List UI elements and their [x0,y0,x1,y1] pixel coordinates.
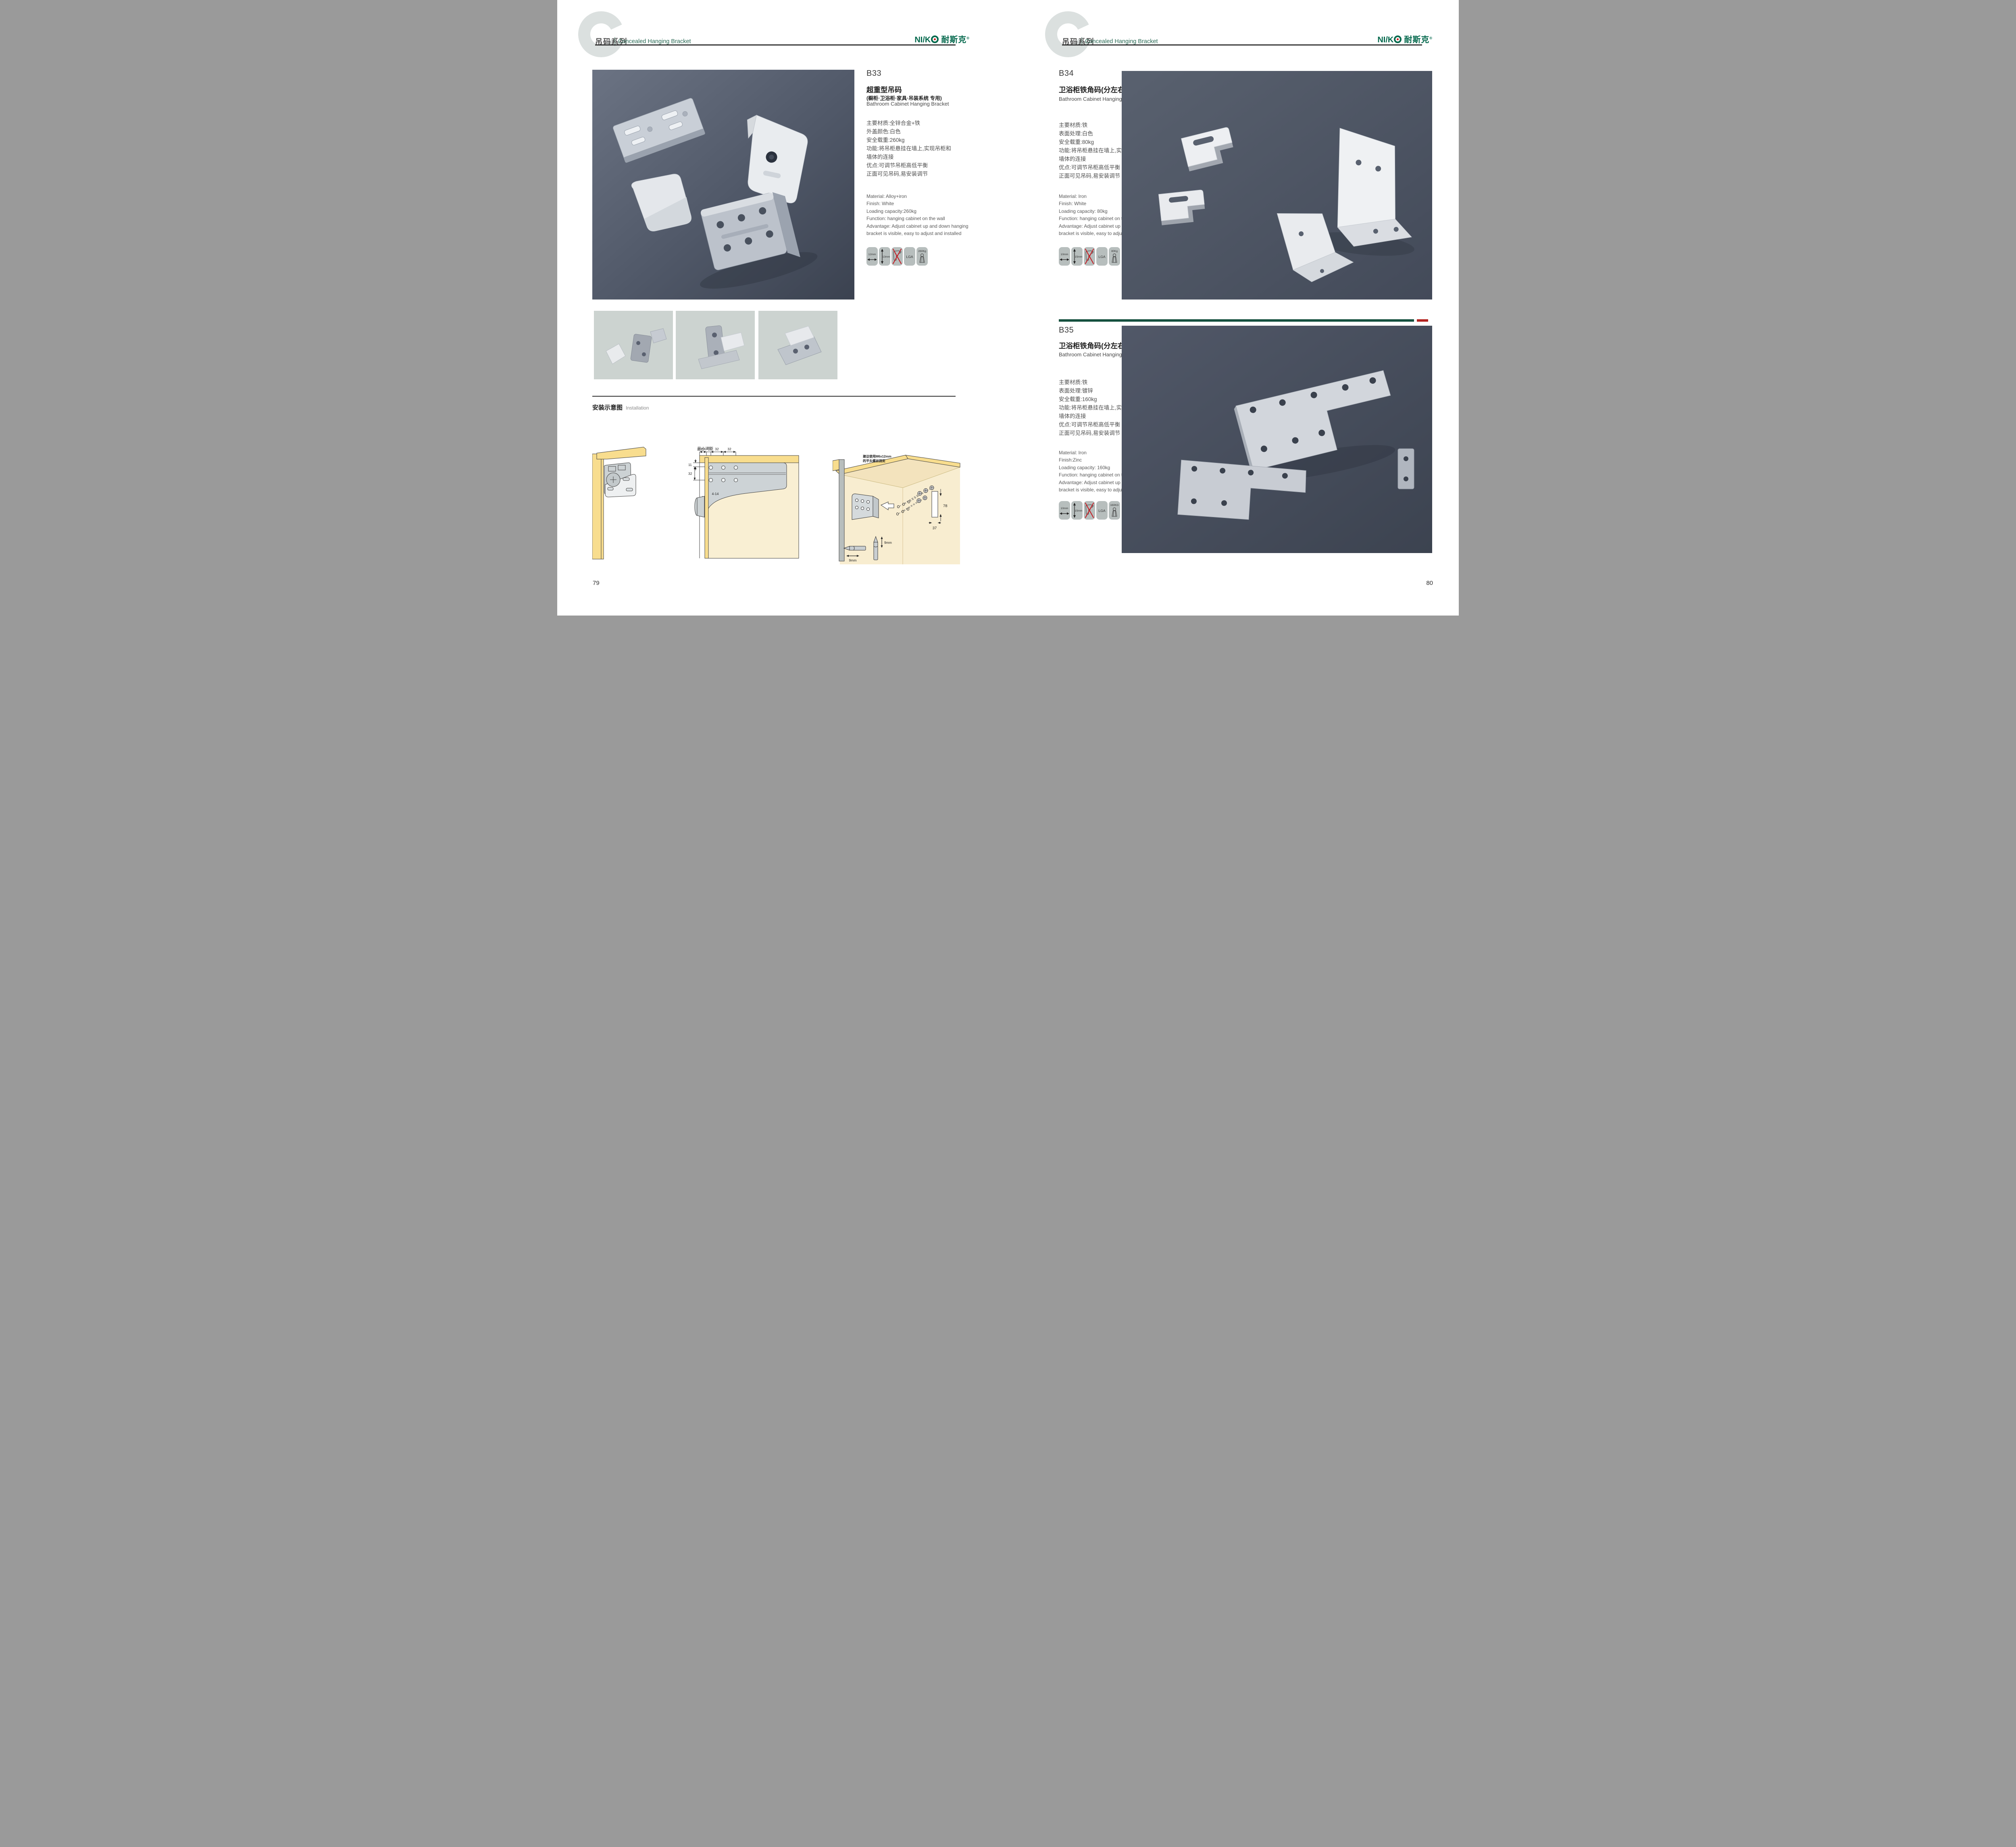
product-photo-b34 [1122,71,1432,300]
product-photo-b33-image [592,70,854,300]
feature-icons: 12mm 13mm LGA 260 [866,247,928,266]
brand-logo-registered: ® [966,36,969,40]
lga-cert-label: LGA [1098,509,1105,513]
screw-note-line2: 的平头螺丝固定 [863,459,885,463]
spec-line: Material: Alloy+iron [866,193,968,200]
brand-logo-cn: 耐斯克 [941,35,966,44]
dim-11: 11 [688,463,692,467]
product-title-cn: 超重型吊码 [866,85,902,95]
panel-thickness-icon: 15mm [1071,501,1083,520]
page-number-left: 79 [593,580,600,587]
panel-thickness-icon: 15mm [1071,247,1083,266]
spec-line: 墙体的连接 [866,153,951,161]
panel-width-icon: 12mm [866,247,878,266]
brand-logo: NI/K耐斯克® [1367,33,1432,45]
product-photo-b34-image [1122,71,1432,300]
spec-line: Loading capacity:260kg [866,208,968,215]
panel-thickness-label: 15mm [1075,256,1083,258]
dim-9mm-a: 9mm [849,558,857,562]
dim-10: 10 [707,446,710,450]
no-drill-icon [1084,501,1095,520]
spec-line: Advantage: Adjust cabinet up and down ha… [866,223,968,230]
installation-title-en: Installation [626,405,649,411]
spec-line: 正面可见吊码,易安装调节 [866,170,951,178]
product-photo-b33 [592,70,854,300]
brand-logo-registered: ® [1429,36,1432,40]
brand-logo-cn: 耐斯克 [1404,35,1429,44]
installation-diagram-section: 最小间距 20 10 32 32 11 32 [685,446,806,564]
panel-width-label: 10mm [1061,507,1068,510]
dim-78: 78 [943,504,948,508]
load-capacity-icon: 80Kg [1109,247,1120,266]
installation-title-cn: 安装示意图 [592,404,623,411]
brand-logo-latin: NI/K [914,35,931,44]
product-title-cn: 卫浴柜铁角码(分左右) [1059,341,1127,351]
load-capacity-label: 260Kg [918,250,926,253]
brand-logo: NI/K耐斯克® [904,33,969,45]
load-capacity-label: 80Kg [1111,250,1118,253]
panel-thickness-label: 15mm [1075,510,1083,512]
panel-width-icon: 10mm [1059,501,1070,520]
folded-bracket-edge [1398,449,1414,489]
load-capacity-icon: 160KG [1109,501,1120,520]
page-number-right: 80 [1418,580,1433,587]
spec-line: 功能:将吊柜悬挂在墙上,实现吊柜和 [866,144,951,153]
dim-20: 20 [701,447,705,451]
panel-width-label: 12mm [868,253,876,256]
product-specs-en: Material: Alloy+iron Finish: White Loadi… [866,193,968,237]
dim-32b: 32 [727,447,731,451]
panel-thickness-label: 13mm [883,256,890,258]
brand-logo-dot-icon [1397,38,1399,40]
lga-cert-label: LGA [1098,255,1105,259]
lga-cert-icon: LGA [904,247,915,266]
product-title-en: Bathroom Cabinet Hanging Bracket [866,101,949,107]
panel-thickness-icon: 13mm [879,247,890,266]
brand-logo-dot-icon [934,38,936,40]
panel-width-icon: 10mm [1059,247,1070,266]
dim-32v: 32 [688,472,692,476]
lga-cert-label: LGA [906,255,913,259]
series-title-en: Concealed Hanging Bracket [1085,38,1158,45]
product-code: B34 [1059,69,1074,78]
thumbnail-image-3 [758,311,837,379]
product-code: B35 [1059,326,1074,335]
spec-line: 主要材质:全锌合金+铁 [866,119,951,127]
feature-icons: 10mm 15mm LGA 80K [1059,247,1120,266]
spec-line: bracket is visible, easy to adjust and i… [866,230,968,237]
section-divider-red [1417,319,1428,322]
spec-line: 优点:可调节吊柜高低平衡 [866,161,951,170]
spec-line: Finish: White [866,200,968,207]
feature-icons: 10mm 15mm LGA 160 [1059,501,1120,520]
load-capacity-label: 160KG [1110,504,1118,507]
thumbnail-image-1 [594,311,673,379]
dim-4-14: 4-14 [712,492,719,496]
product-photo-b35 [1122,326,1432,553]
dim-37: 37 [933,526,937,530]
spec-line: 安全载重:260kg [866,136,951,144]
spec-line: 外盖颜色:白色 [866,127,951,136]
catalog-sheet: 吊码系列 Concealed Hanging Bracket NI/K耐斯克® … [557,0,1459,616]
lga-cert-icon: LGA [1096,501,1108,520]
brand-logo-latin: NI/K [1377,35,1393,44]
installation-diagram-side [592,446,682,564]
series-title-en: Concealed Hanging Bracket [618,38,691,45]
screw-note-line1: 建议使用M6x12mm [862,454,891,458]
cabinet-bracket-drawing [852,494,879,520]
no-drill-icon [891,247,903,266]
lga-cert-icon: LGA [1096,247,1108,266]
product-code: B33 [866,69,881,78]
spec-line: Function: hanging cabinet on the wall [866,215,968,222]
panel-width-label: 10mm [1061,253,1068,256]
dim-9mm-b: 9mm [884,541,892,545]
load-capacity-icon: 260Kg [916,247,928,266]
section-divider-green [1059,319,1414,322]
series-watermark-icon [578,10,625,58]
product-title-cn: 卫浴柜铁角码(分左右) [1059,85,1127,95]
thumbnail-image-2 [676,311,755,379]
product-specs-cn: 主要材质:全锌合金+铁 外盖颜色:白色 安全载重:260kg 功能:将吊柜悬挂在… [866,119,951,178]
product-photo-b35-image [1122,326,1432,553]
no-drill-icon [1084,247,1095,266]
installation-diagram-cabinet: 建议使用M6x12mm 的平头螺丝固定 [833,446,960,564]
installation-heading: 安装示意图Installation [592,403,649,412]
section-divider [592,396,956,397]
brand-logo-o-icon [1394,35,1402,43]
dim-32a: 32 [715,447,719,451]
min-gap-label: 最小间距 [697,446,713,451]
series-watermark-icon [1045,10,1092,58]
brand-logo-o-icon [931,35,939,43]
header-rule [595,44,956,46]
